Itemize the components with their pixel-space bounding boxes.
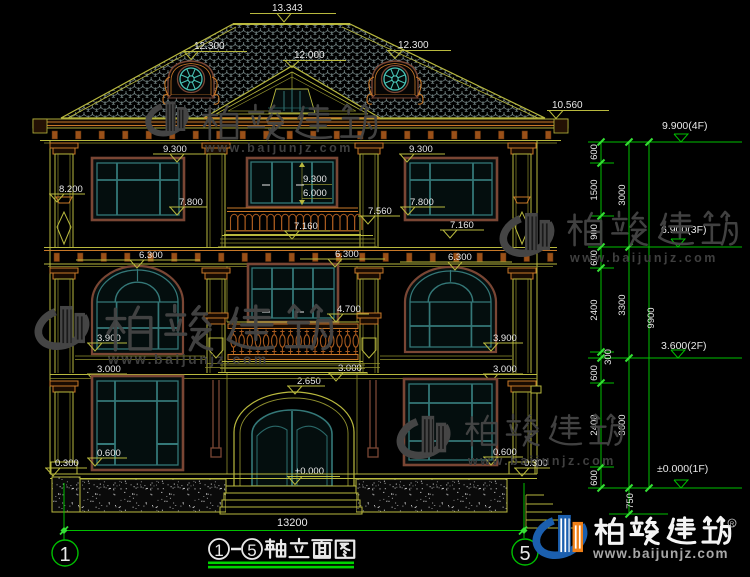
svg-text:750: 750 [625, 493, 636, 509]
svg-text:9900: 9900 [646, 307, 657, 328]
svg-text:±0.000(1F): ±0.000(1F) [657, 463, 708, 475]
svg-text:6.300: 6.300 [139, 250, 163, 261]
svg-text:3300: 3300 [617, 294, 628, 315]
svg-text:www.baijunjz.com: www.baijunjz.com [107, 351, 269, 367]
svg-text:7.160: 7.160 [294, 221, 318, 232]
svg-text:1: 1 [214, 541, 223, 560]
svg-text:7.800: 7.800 [179, 197, 203, 208]
svg-text:8.200: 8.200 [59, 184, 83, 195]
svg-text:5: 5 [519, 543, 530, 565]
svg-text:9.300: 9.300 [303, 174, 327, 185]
svg-text:±0.000: ±0.000 [295, 466, 324, 477]
svg-text:www.baijunjz.com: www.baijunjz.com [467, 454, 616, 468]
svg-text:600: 600 [589, 365, 600, 381]
svg-text:R: R [730, 522, 735, 528]
svg-text:7.160: 7.160 [450, 220, 474, 231]
svg-text:0.300: 0.300 [55, 458, 79, 469]
svg-text:13200: 13200 [277, 517, 308, 529]
svg-text:600: 600 [589, 144, 600, 160]
svg-text:5: 5 [247, 541, 256, 560]
svg-text:0.600: 0.600 [97, 448, 121, 459]
svg-text:4.700: 4.700 [337, 304, 361, 315]
svg-text:3.000: 3.000 [493, 364, 517, 375]
svg-text:1500: 1500 [589, 179, 600, 200]
svg-text:3.000: 3.000 [338, 363, 362, 374]
svg-text:7.560: 7.560 [368, 206, 392, 217]
svg-text:12.300: 12.300 [398, 40, 429, 51]
svg-text:600: 600 [589, 470, 600, 486]
svg-text:10.560: 10.560 [552, 100, 583, 111]
svg-text:300: 300 [603, 349, 614, 365]
svg-text:www.baijunjz.com: www.baijunjz.com [569, 251, 718, 265]
svg-text:6.000: 6.000 [303, 188, 327, 199]
svg-text:12.300: 12.300 [194, 41, 225, 52]
svg-text:9.900(4F): 9.900(4F) [662, 120, 708, 132]
svg-text:3000: 3000 [617, 184, 628, 205]
svg-text:13.343: 13.343 [272, 3, 303, 14]
svg-text:9.300: 9.300 [163, 144, 187, 155]
svg-text:www.baijunjz.com: www.baijunjz.com [204, 141, 353, 155]
svg-text:9.300: 9.300 [409, 144, 433, 155]
svg-text:12.000: 12.000 [294, 50, 325, 61]
svg-text:6.300: 6.300 [448, 252, 472, 263]
svg-text:www.baijunjz.com: www.baijunjz.com [592, 546, 729, 561]
svg-text:2400: 2400 [589, 299, 600, 320]
svg-text:3.900: 3.900 [493, 333, 517, 344]
svg-text:1: 1 [59, 544, 70, 566]
svg-text:6.300: 6.300 [335, 249, 359, 260]
svg-text:7.800: 7.800 [410, 197, 434, 208]
svg-text:2.650: 2.650 [297, 376, 321, 387]
